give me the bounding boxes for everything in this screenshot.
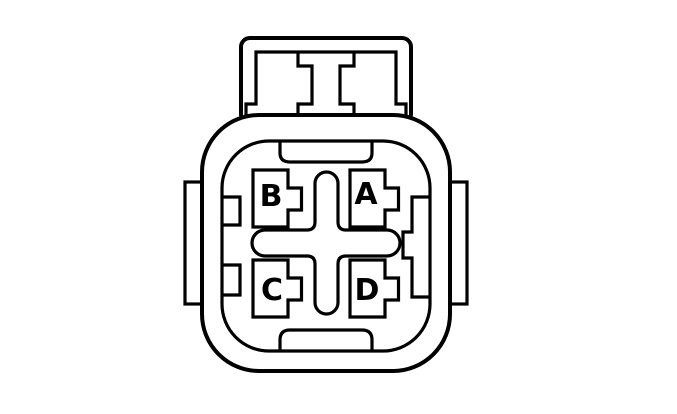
terminal-a-label: A: [354, 177, 378, 212]
left-mount-tab: [185, 182, 202, 304]
connector-diagram: B A C D: [0, 0, 677, 414]
right-mount-tab: [450, 182, 467, 304]
terminal-d-label: D: [355, 273, 380, 308]
terminal-b-label: B: [260, 179, 283, 214]
terminal-c-label: C: [261, 273, 283, 308]
